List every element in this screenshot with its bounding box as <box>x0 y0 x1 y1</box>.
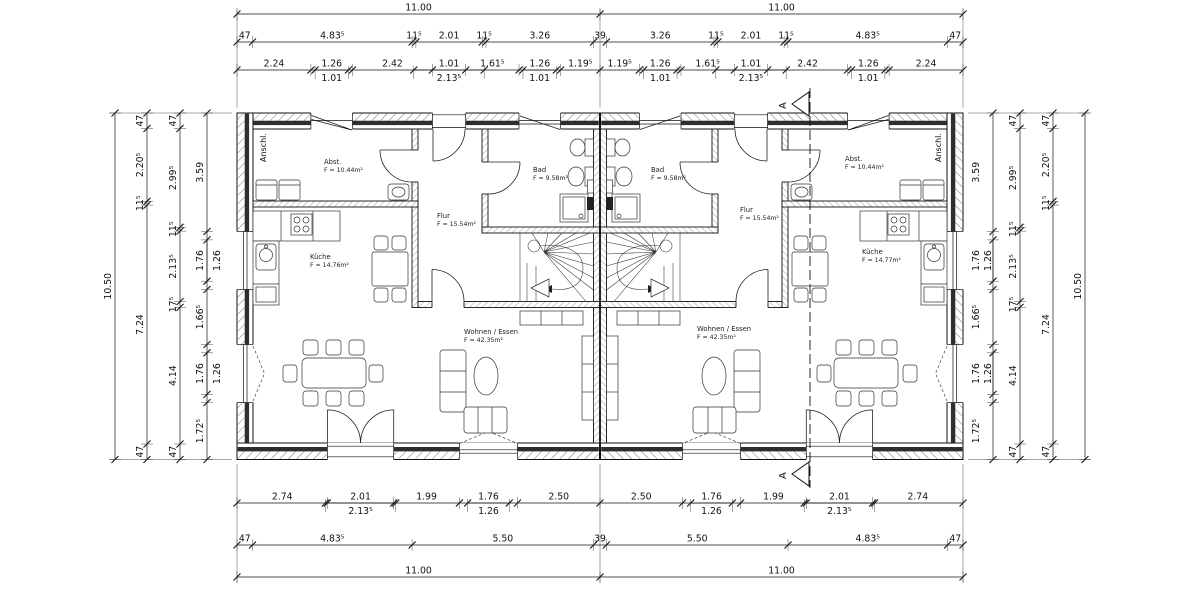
dimension-label: 11.00 <box>768 3 795 14</box>
dimension-label: 1.66⁵ <box>971 305 982 330</box>
room-name-label: Küche <box>310 253 331 261</box>
room-name-label: Wohnen / Essen <box>697 325 751 333</box>
dimension-label: 11⁵ <box>406 31 422 42</box>
dimension-label: 1.01 <box>439 59 460 70</box>
dimension-label: 1.26 <box>701 506 722 517</box>
dimension-label: 2.13⁵ <box>348 506 373 517</box>
dimension-label: 1.26 <box>529 59 550 70</box>
dimension-label: 1.76 <box>971 363 982 384</box>
room-name-label: Bad <box>533 166 546 174</box>
rotated-annotation: A <box>778 472 789 479</box>
dimension-label: 1.72⁵ <box>971 419 982 444</box>
room-name-label: Flur <box>437 212 450 220</box>
dimension-label: 4.83⁵ <box>855 31 880 42</box>
dimension-label: 1.26 <box>212 250 223 271</box>
rotated-annotation: A <box>778 102 789 109</box>
room-area-label: F = 14.76m² <box>310 262 349 269</box>
dimension-label: 47 <box>135 115 146 127</box>
dimension-label: 2.24 <box>916 59 937 70</box>
dimension-label: 10.50 <box>1073 273 1084 300</box>
rotated-annotation: Anschl. <box>259 133 268 162</box>
dimension-label: 1.01 <box>650 73 671 84</box>
dimension-label: 1.01 <box>529 73 550 84</box>
dimension-label: 1.66⁵ <box>195 305 206 330</box>
dimension-label: 4.83⁵ <box>320 534 345 545</box>
dimension-label: 2.99⁵ <box>168 165 179 190</box>
dimension-label: 5.50 <box>687 534 708 545</box>
dimension-label: 7.24 <box>1041 314 1052 335</box>
dimension-label: 1.26 <box>478 506 499 517</box>
dimension-label: 11⁵ <box>778 31 794 42</box>
dimension-label: 47 <box>1008 446 1019 458</box>
dimension-label: 2.20⁵ <box>135 152 146 177</box>
room-area-label: F = 42.35m² <box>697 334 736 341</box>
dimension-label: 11⁵ <box>168 221 179 237</box>
room-area-label: F = 10.44m² <box>845 164 884 171</box>
dimension-label: 4.83⁵ <box>856 534 881 545</box>
dimension-label: 1.26 <box>321 59 342 70</box>
dimension-label: 2.74 <box>272 492 293 503</box>
kitchen-dining-set <box>372 236 408 302</box>
dimension-label: 2.50 <box>548 492 569 503</box>
dimension-label: 1.19⁵ <box>568 59 593 70</box>
dimension-label: 11.00 <box>405 3 432 14</box>
dimension-label: 1.26 <box>858 59 879 70</box>
room-name-label: Abst. <box>324 158 341 166</box>
dimension-label: 39 <box>594 31 606 42</box>
dimension-label: 2.99⁵ <box>1008 165 1019 190</box>
room-area-label: F = 42.35m² <box>464 337 503 344</box>
dimension-label: 47 <box>1041 446 1052 458</box>
dimension-label: 1.61⁵ <box>695 59 720 70</box>
dimension-label: 11.00 <box>405 566 432 577</box>
dimension-label: 1.01 <box>741 59 762 70</box>
dimension-label: 3.26 <box>650 31 671 42</box>
dimension-label: 5.50 <box>492 534 513 545</box>
dimension-label: 17⁵ <box>1008 296 1019 312</box>
dimension-label: 2.01 <box>741 31 762 42</box>
dimension-label: 39 <box>594 534 606 545</box>
dimension-label: 4.14 <box>1008 365 1019 386</box>
dimension-label: 47 <box>168 115 179 127</box>
dimension-label: 2.74 <box>907 492 928 503</box>
dimension-label: 4.14 <box>168 365 179 386</box>
dimension-label: 4.83⁵ <box>320 31 345 42</box>
dimension-label: 7.24 <box>135 314 146 335</box>
dimension-label: 2.13⁵ <box>739 73 764 84</box>
room-name-label: Bad <box>651 166 664 174</box>
dimension-label: 3.59 <box>971 162 982 183</box>
section-marker-top <box>792 92 809 116</box>
dimension-label: 47 <box>168 446 179 458</box>
dimension-label: 1.26 <box>212 363 223 384</box>
room-area-label: F = 14.77m² <box>862 257 901 264</box>
dimension-label: 1.19⁵ <box>607 59 632 70</box>
dimension-label: 1.99 <box>763 492 784 503</box>
dimension-label: 2.50 <box>631 492 652 503</box>
dimension-label: 47 <box>239 534 251 545</box>
dimension-label: 2.13⁵ <box>1008 254 1019 279</box>
section-marker-bottom <box>792 462 809 486</box>
dimension-label: 11⁵ <box>476 31 492 42</box>
floor-plan-canvas: 11.0011.00474.83⁵11⁵2.0111⁵3.26393.2611⁵… <box>0 0 1200 600</box>
dimension-label: 1.76 <box>195 250 206 271</box>
floor-plan-page: 11.0011.00474.83⁵11⁵2.0111⁵3.26393.2611⁵… <box>0 0 1200 600</box>
room-area-label: F = 15.54m² <box>437 221 476 228</box>
dimension-label: 3.26 <box>529 31 550 42</box>
dimension-label: 1.61⁵ <box>480 59 505 70</box>
dimension-label: 1.26 <box>983 250 994 271</box>
dimension-label: 1.76 <box>971 250 982 271</box>
staircase <box>520 233 594 302</box>
dimension-label: 1.76 <box>701 492 722 503</box>
room-name-label: Abst. <box>845 155 862 163</box>
dimension-label: 2.42 <box>382 59 403 70</box>
room-area-label: F = 15.54m² <box>740 215 779 222</box>
unit-left-geometry <box>236 112 599 460</box>
room-area-label: F = 9.58m² <box>533 175 568 182</box>
dimension-label: 2.13⁵ <box>168 254 179 279</box>
dimension-label: 1.99 <box>416 492 437 503</box>
dimension-label: 11.00 <box>768 566 795 577</box>
dimension-label: 2.20⁵ <box>1041 152 1052 177</box>
room-name-label: Flur <box>740 206 753 214</box>
dimension-label: 11⁵ <box>135 195 146 211</box>
rotated-annotation: Anschl. <box>934 133 943 162</box>
dimension-label: 1.72⁵ <box>195 419 206 444</box>
dimension-label: 47 <box>239 31 251 42</box>
dimension-label: 11⁵ <box>1041 195 1052 211</box>
room-name-label: Wohnen / Essen <box>464 328 518 336</box>
dimension-label: 17⁵ <box>168 296 179 312</box>
dimension-label: 2.01 <box>350 492 371 503</box>
dimension-label: 1.76 <box>195 363 206 384</box>
dimension-label: 11⁵ <box>708 31 724 42</box>
dimension-label: 2.13⁵ <box>827 506 852 517</box>
dimension-label: 3.59 <box>195 162 206 183</box>
living-room-furniture <box>283 311 594 433</box>
dimension-label: 1.26 <box>983 363 994 384</box>
dimension-label: 1.76 <box>478 492 499 503</box>
room-name-label: Küche <box>862 248 883 256</box>
unit-right-geometry <box>601 112 964 460</box>
dimension-label: 2.24 <box>264 59 285 70</box>
dimension-label: 1.01 <box>858 73 879 84</box>
dimension-label: 47 <box>949 534 961 545</box>
dimension-label: 2.42 <box>797 59 818 70</box>
dimension-label: 1.26 <box>650 59 671 70</box>
room-area-label: F = 10.44m² <box>324 167 363 174</box>
dimension-label: 2.01 <box>829 492 850 503</box>
storage-room-fixtures <box>256 180 409 200</box>
dimension-label: 2.01 <box>439 31 460 42</box>
dimension-label: 47 <box>949 31 961 42</box>
dimension-label: 10.50 <box>103 273 114 300</box>
dimension-label: 47 <box>1041 115 1052 127</box>
dimension-label: 2.13⁵ <box>437 73 462 84</box>
dimension-label: 47 <box>1008 115 1019 127</box>
room-area-label: F = 9.58m² <box>651 175 686 182</box>
party-wall <box>594 129 600 443</box>
door-openings <box>411 150 488 308</box>
dimension-label: 1.01 <box>321 73 342 84</box>
dimension-label: 11⁵ <box>1008 221 1019 237</box>
dimension-label: 47 <box>135 446 146 458</box>
